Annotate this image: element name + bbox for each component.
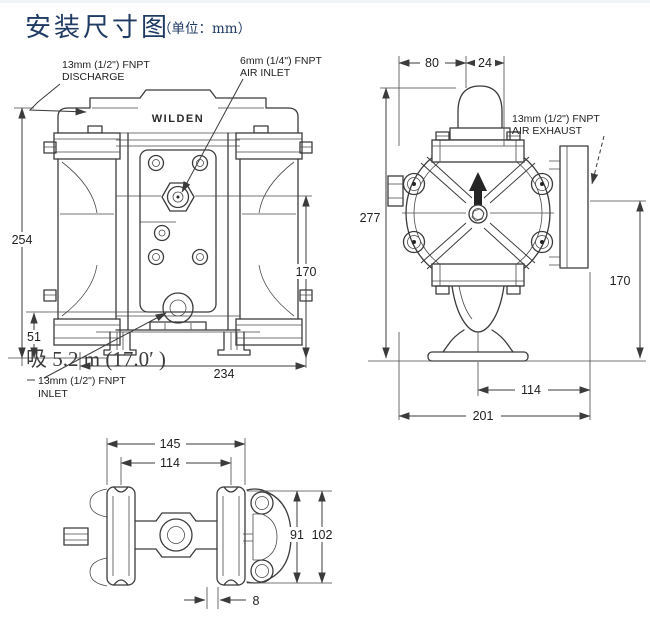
cap-bolt-right (254, 126, 268, 133)
dim-foot-center-spacing: 114 (160, 456, 180, 470)
discharge-label-line1: 13mm (1/2") FNPT (62, 59, 150, 71)
air-inlet-label-line2: AIR INLET (240, 67, 291, 79)
dim-overall-height-front: 254 (12, 233, 33, 247)
bottom-view (64, 487, 291, 586)
discharge-label-line2: DISCHARGE (62, 71, 124, 83)
air-exhaust-leader-line (592, 136, 604, 184)
bottom-view-dimensions: 145 114 91 102 8 (107, 437, 338, 609)
inlet-dome (452, 286, 504, 332)
top-flange (432, 140, 524, 162)
air-inlet-leader-line (182, 79, 243, 192)
dim-overall-depth: 102 (312, 528, 333, 542)
bottom-right-foot (217, 487, 245, 585)
brand-text: WILDEN (152, 113, 204, 125)
bottom-left-foot (107, 487, 135, 585)
dim-flange-height: 91 (290, 528, 304, 542)
right-bracket (243, 489, 291, 583)
dim-pipe-width: 24 (478, 56, 492, 70)
side-view: 13mm (1/2") FNPT AIR EXHAUST (368, 86, 646, 361)
dim-overall-height-side: 277 (360, 211, 381, 225)
dim-foot-outer-width: 145 (160, 437, 181, 451)
top-border (0, 0, 650, 3)
suction-lift-note: 吸 5.2 m (17.0′ ) (26, 347, 166, 371)
air-inlet-fitting (162, 183, 194, 211)
dim-foot-thickness: 8 (253, 594, 260, 608)
inlet-port-circle (163, 293, 193, 323)
left-top-clamp-band (54, 133, 120, 159)
installation-dimension-drawing: 安装尺寸图 （单位：mm） WILDEN (0, 0, 650, 625)
dim-inlet-height: 51 (27, 330, 41, 344)
foot-base (428, 352, 528, 361)
dim-overall-width-side: 201 (473, 409, 494, 423)
dim-top-flange-offset: 80 (425, 56, 439, 70)
side-bolt (44, 290, 56, 301)
center-panel (140, 150, 216, 312)
center-boss (160, 519, 192, 551)
muffler-plate (560, 146, 588, 268)
pilot-plug (155, 226, 170, 241)
panel-bolts (149, 156, 208, 265)
air-inlet-label-line1: 6mm (1/4") FNPT (240, 55, 322, 67)
air-exhaust-label-line1: 13mm (1/2") FNPT (512, 113, 600, 125)
air-exhaust-label-line2: AIR EXHAUST (512, 125, 583, 137)
unit-note: （单位：mm） (158, 21, 251, 37)
dim-foot-to-muffler: 114 (521, 383, 541, 397)
left-stub (64, 528, 88, 545)
left-port-fitting (388, 176, 403, 206)
inlet-label-line2: INLET (38, 388, 68, 400)
dim-overall-width-front: 234 (214, 367, 235, 381)
flow-direction-arrow (469, 172, 487, 205)
cap-bolt-left (88, 126, 102, 133)
page-title: 安装尺寸图 (25, 13, 170, 43)
inlet-label-line1: 13mm (1/2") FNPT (38, 375, 126, 387)
right-top-clamp-band (236, 133, 302, 159)
dim-exhaust-height: 170 (610, 274, 631, 288)
side-view-dimensions: 80 24 277 170 114 201 (355, 56, 646, 423)
bottom-flange (432, 264, 524, 286)
dim-body-height-front: 170 (296, 265, 317, 279)
